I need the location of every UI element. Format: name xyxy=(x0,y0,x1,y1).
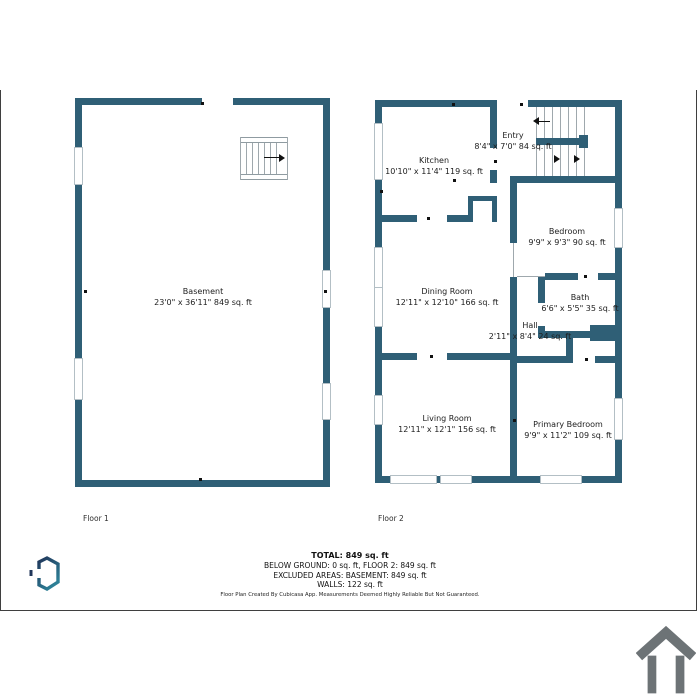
marker xyxy=(201,102,204,105)
room-label-living-room: Living Room 12'11" x 12'1" 156 sq. ft xyxy=(398,413,496,435)
wall xyxy=(75,480,330,487)
summary-below-ground: BELOW GROUND: 0 sq. ft, FLOOR 2: 849 sq.… xyxy=(0,561,700,571)
page-border xyxy=(0,90,697,611)
window xyxy=(390,475,437,484)
room-name: Kitchen xyxy=(385,155,483,166)
room-name: Bedroom xyxy=(528,226,605,237)
wall xyxy=(375,215,417,222)
window xyxy=(540,475,582,484)
room-label-primary-bedroom: Primary Bedroom 9'9" x 11'2" 109 sq. ft xyxy=(524,419,612,441)
wall xyxy=(545,273,578,280)
summary-walls: WALLS: 122 sq. ft xyxy=(0,580,700,590)
stair-direction-arrow xyxy=(533,117,539,125)
stair-rail-wall xyxy=(579,135,588,148)
window xyxy=(322,270,331,308)
window xyxy=(322,383,331,420)
window xyxy=(440,475,472,484)
wall xyxy=(447,353,517,360)
room-label-entry: Entry 8'4" x 7'0" 84 sq. ft xyxy=(474,130,551,152)
room-name: Bath xyxy=(541,292,618,303)
marker xyxy=(452,103,455,106)
house-icon xyxy=(636,624,696,695)
window xyxy=(374,395,383,425)
wall xyxy=(375,100,495,107)
room-name: Basement xyxy=(154,286,252,297)
disclaimer-text: Floor Plan Created By Cubicasa App. Meas… xyxy=(0,592,700,598)
stair-direction-arrow xyxy=(554,155,560,163)
room-label-dining-room: Dining Room 12'11" x 12'10" 166 sq. ft xyxy=(396,286,499,308)
room-dims: 6'6" x 5'5" 35 sq. ft xyxy=(541,303,618,314)
chimney xyxy=(468,196,497,222)
wall xyxy=(512,176,622,183)
stair-direction-arrow xyxy=(574,155,580,163)
window xyxy=(74,147,83,185)
wall xyxy=(510,277,517,360)
wall xyxy=(595,356,615,363)
marker xyxy=(584,275,587,278)
window xyxy=(374,123,383,180)
room-label-bath: Bath 6'6" x 5'5" 35 sq. ft xyxy=(541,292,618,314)
marker xyxy=(84,290,87,293)
marker xyxy=(513,419,516,422)
marker xyxy=(199,478,202,481)
room-name: Dining Room xyxy=(396,286,499,297)
room-dims: 12'11" x 12'10" 166 sq. ft xyxy=(396,297,499,308)
area-summary: TOTAL: 849 sq. ft BELOW GROUND: 0 sq. ft… xyxy=(0,551,700,590)
window xyxy=(74,358,83,400)
window-mullion xyxy=(374,287,383,288)
cubicasa-logo-icon xyxy=(27,555,65,593)
wall xyxy=(375,353,417,360)
room-dims: 23'0" x 36'11" 849 sq. ft xyxy=(154,297,252,308)
wall xyxy=(528,100,622,107)
room-name: Hall xyxy=(489,320,571,331)
room-dims: 9'9" x 9'3" 90 sq. ft xyxy=(528,237,605,248)
room-dims: 8'4" x 7'0" 84 sq. ft xyxy=(474,141,551,152)
room-dims: 10'10" x 11'4" 119 sq. ft xyxy=(385,166,483,177)
marker xyxy=(520,103,523,106)
marker xyxy=(585,358,588,361)
stair-direction-arrow xyxy=(279,154,285,162)
wall xyxy=(598,273,615,280)
wall xyxy=(517,356,573,363)
marker xyxy=(324,290,327,293)
wall xyxy=(490,170,497,183)
closet-block xyxy=(590,325,615,341)
room-dims: 12'11" x 12'1" 156 sq. ft xyxy=(398,424,496,435)
room-dims: 2'11" x 8'4" 24 sq. ft xyxy=(489,331,571,342)
room-label-basement: Basement 23'0" x 36'11" 849 sq. ft xyxy=(154,286,252,308)
wall xyxy=(510,176,517,243)
marker xyxy=(430,355,433,358)
summary-total: TOTAL: 849 sq. ft xyxy=(0,551,700,561)
room-label-bedroom: Bedroom 9'9" x 9'3" 90 sq. ft xyxy=(528,226,605,248)
room-label-kitchen: Kitchen 10'10" x 11'4" 119 sq. ft xyxy=(385,155,483,177)
room-name: Primary Bedroom xyxy=(524,419,612,430)
floor2-caption: Floor 2 xyxy=(378,514,404,523)
wall xyxy=(233,98,330,105)
window xyxy=(614,208,623,248)
marker xyxy=(494,160,497,163)
room-name: Entry xyxy=(474,130,551,141)
room-label-hall: Hall 2'11" x 8'4" 24 sq. ft xyxy=(489,320,571,342)
floor-plan-page: Basement 23'0" x 36'11" 849 sq. ft xyxy=(0,0,700,700)
wall xyxy=(75,98,202,105)
marker xyxy=(453,179,456,182)
marker xyxy=(380,190,383,193)
summary-excluded: EXCLUDED AREAS: BASEMENT: 849 sq. ft xyxy=(0,571,700,581)
floor1-caption: Floor 1 xyxy=(83,514,109,523)
room-name: Living Room xyxy=(398,413,496,424)
room-dims: 9'9" x 11'2" 109 sq. ft xyxy=(524,430,612,441)
window xyxy=(614,398,623,440)
marker xyxy=(427,217,430,220)
